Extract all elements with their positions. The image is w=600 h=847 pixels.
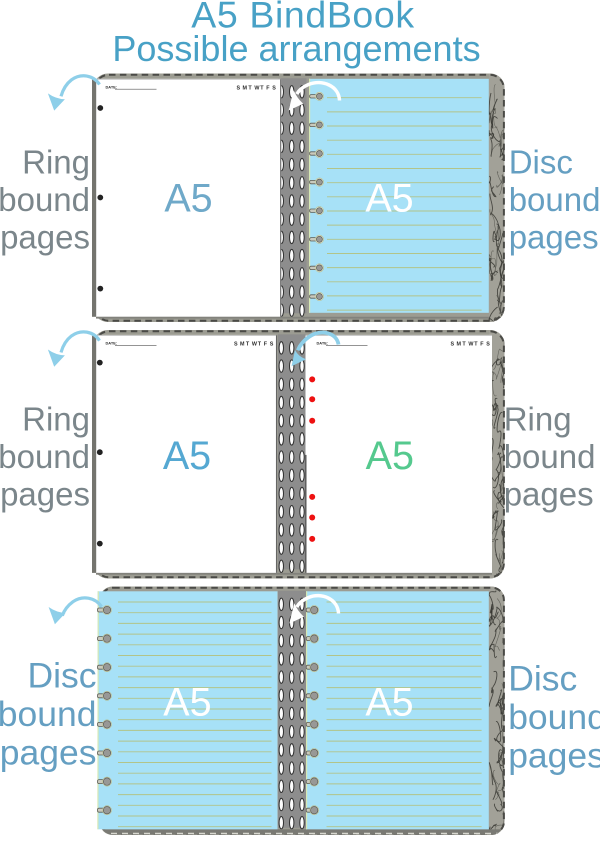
svg-text:bound: bound [504,438,596,475]
svg-text:M: M [456,342,461,348]
svg-text:Ring: Ring [22,144,90,181]
svg-text:A5: A5 [163,681,211,725]
svg-text:S: S [486,342,490,348]
svg-text:pages: pages [504,476,594,513]
svg-text:M: M [240,342,245,348]
svg-text:A5: A5 [365,176,413,220]
svg-text:pages: pages [509,219,599,256]
svg-text:A5: A5 [164,176,212,220]
svg-text:bound: bound [0,181,90,218]
svg-text:DATE:: DATE: [106,340,118,345]
svg-text:pages: pages [0,733,97,773]
svg-text:S: S [451,342,455,348]
svg-text:bound: bound [0,694,97,734]
svg-text:bound: bound [0,438,90,475]
svg-text:A5: A5 [163,434,211,478]
svg-text:Possible arrangements: Possible arrangements [112,28,480,69]
svg-text:A5: A5 [365,681,413,725]
svg-text:Ring: Ring [22,401,90,438]
svg-text:Disc: Disc [508,659,577,699]
svg-text:pages: pages [508,736,600,776]
svg-text:Disc: Disc [27,656,96,696]
svg-text:pages: pages [0,219,90,256]
svg-text:A5: A5 [366,434,414,478]
svg-text:Ring: Ring [504,401,572,438]
svg-text:S: S [270,342,274,348]
svg-text:DATE:: DATE: [317,340,329,345]
svg-text:S: S [237,86,241,92]
svg-text:DATE:: DATE: [106,84,118,89]
svg-text:Disc: Disc [509,144,573,181]
svg-text:S: S [272,86,276,92]
svg-text:bound: bound [508,697,600,737]
svg-text:M: M [242,86,247,92]
svg-text:bound: bound [509,181,600,218]
svg-text:S: S [234,342,238,348]
svg-text:pages: pages [0,476,90,513]
